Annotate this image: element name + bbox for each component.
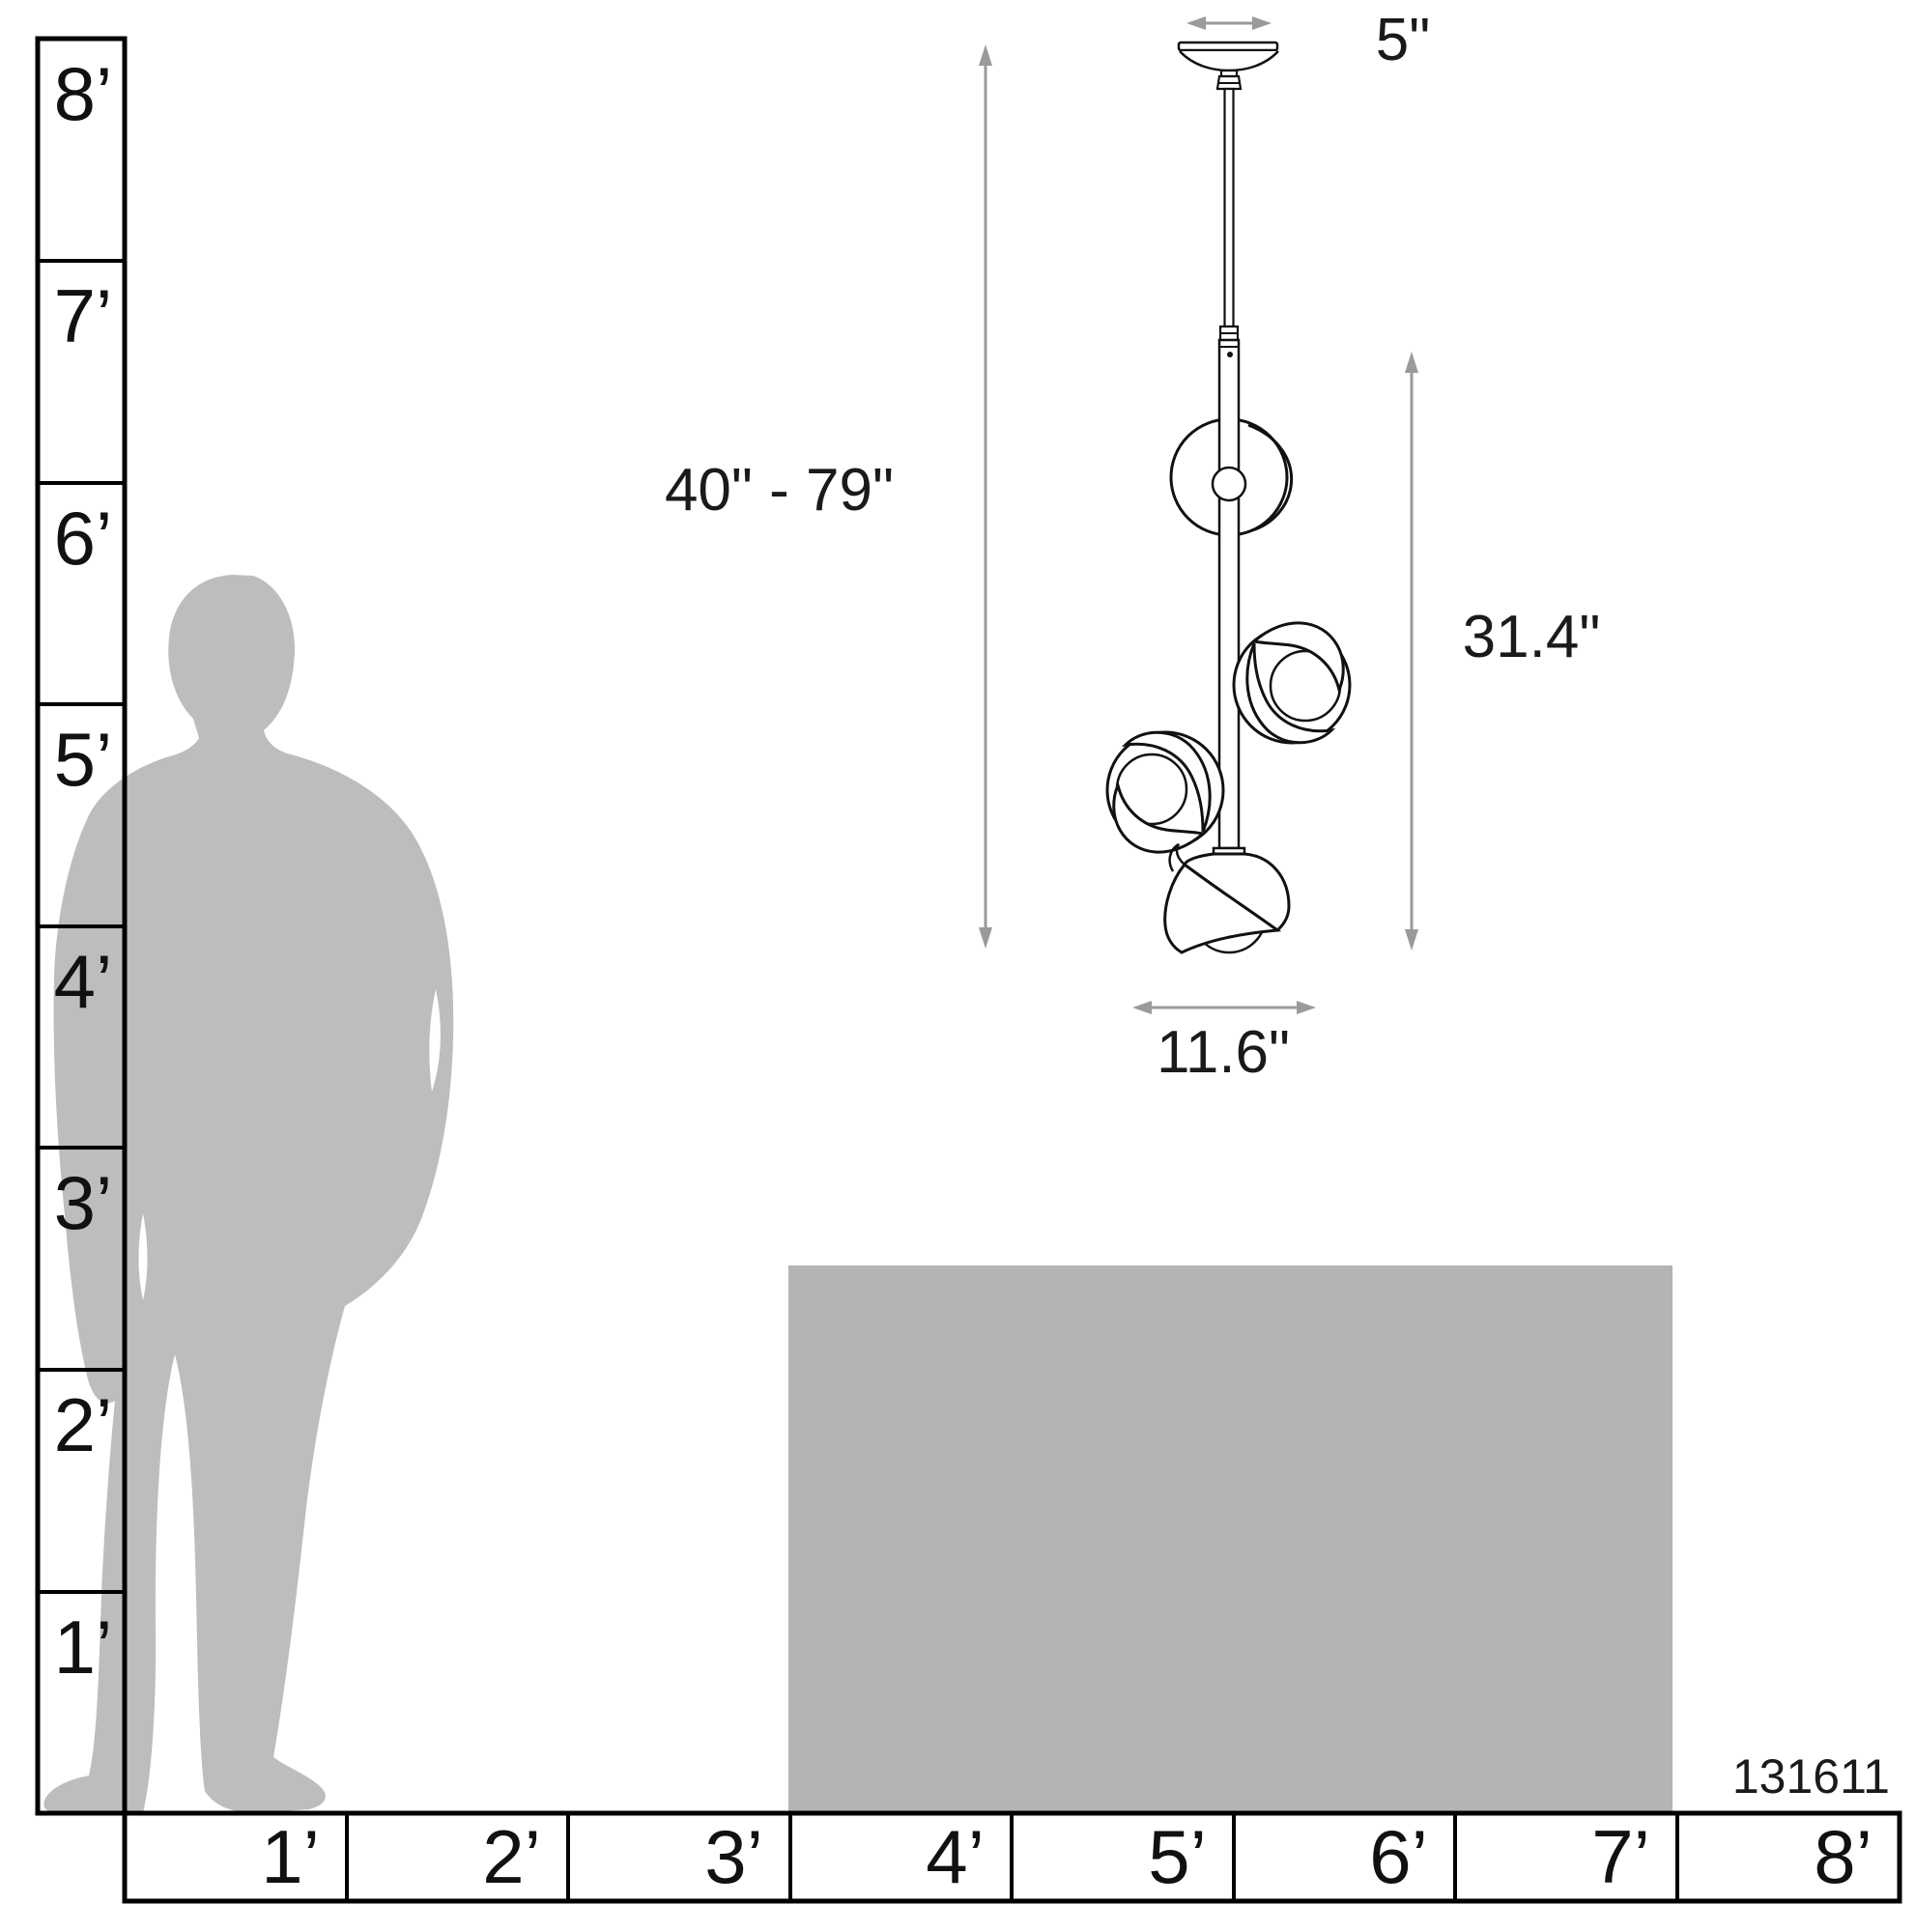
vertical-ruler-label-7ft: 7’	[54, 273, 113, 358]
horizontal-ruler: 1’ 2’ 3’ 4’ 5’ 6’ 7’ 8’	[125, 1813, 1900, 1901]
vertical-ruler-label-1ft: 1’	[54, 1605, 113, 1690]
fixture-width-label: 11.6"	[1157, 1019, 1290, 1086]
globe-bottom	[1165, 844, 1289, 952]
overall-height-arrow	[979, 44, 992, 949]
vertical-ruler-label-2ft: 2’	[54, 1382, 113, 1467]
horizontal-ruler-label-7ft: 7’	[1591, 1814, 1650, 1899]
globe-right	[1234, 623, 1350, 743]
canopy	[1179, 43, 1278, 89]
vertical-ruler-label-6ft: 6’	[54, 496, 113, 581]
canopy-width-arrow	[1186, 16, 1272, 30]
pendant-fixture	[1107, 43, 1350, 952]
vertical-ruler-label-5ft: 5’	[54, 717, 113, 802]
vertical-ruler-label-3ft: 3’	[54, 1160, 113, 1245]
overall-height-label: 40" - 79"	[665, 457, 894, 524]
vertical-ruler-label-4ft: 4’	[54, 939, 113, 1024]
stem-set-screw	[1227, 352, 1233, 357]
table-block	[788, 1265, 1672, 1813]
diagram-svg: 8’ 7’ 6’ 5’ 4’ 3’ 2’ 1’ 1’ 2’ 3’ 4’ 5’	[0, 0, 1915, 1932]
horizontal-ruler-label-6ft: 6’	[1369, 1814, 1428, 1899]
fixture-width-arrow	[1132, 1001, 1316, 1014]
fixture-height-arrow	[1405, 352, 1418, 951]
fixture-height-label: 31.4"	[1463, 604, 1601, 670]
vertical-ruler-label-8ft: 8’	[54, 51, 113, 136]
horizontal-ruler-label-2ft: 2’	[482, 1814, 541, 1899]
horizontal-ruler-label-8ft: 8’	[1814, 1814, 1872, 1899]
item-number-label: 131611	[1732, 1749, 1890, 1804]
horizontal-ruler-label-3ft: 3’	[704, 1814, 763, 1899]
horizontal-ruler-label-5ft: 5’	[1148, 1814, 1207, 1899]
product-dimension-diagram: 8’ 7’ 6’ 5’ 4’ 3’ 2’ 1’ 1’ 2’ 3’ 4’ 5’	[0, 0, 1915, 1932]
globe-top-socket	[1213, 468, 1245, 500]
canopy-width-label: 5"	[1376, 7, 1431, 73]
horizontal-ruler-label-1ft: 1’	[261, 1814, 320, 1899]
horizontal-ruler-label-4ft: 4’	[926, 1814, 985, 1899]
globe-left	[1107, 732, 1223, 852]
